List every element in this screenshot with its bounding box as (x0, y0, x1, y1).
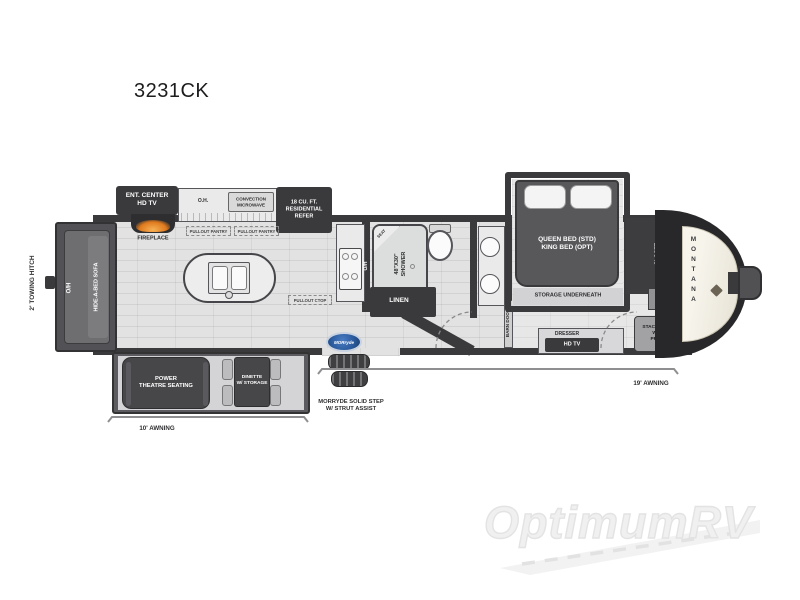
awning-right-label: 19' AWNING (633, 380, 668, 388)
shower-label: 48"X30" SHOWER (394, 252, 408, 277)
barn-door-label: BARN DOOR (505, 309, 511, 337)
entry-step-2 (331, 371, 368, 387)
counter-oh-label: O.H. (198, 198, 208, 204)
fireplace-flame (136, 220, 170, 232)
dresser-tv-label: HD TV (564, 342, 581, 349)
toilet (427, 230, 453, 261)
convection-microwave-label: CONVECTION MICROWAVE (236, 196, 266, 207)
pullout-pantry-2: PULLOUT PANTRY (234, 226, 279, 236)
step-label: MORRYDE SOLID STEP W/ STRUT ASSIST (318, 399, 384, 413)
pullout-pantry-1: PULLOUT PANTRY (186, 226, 231, 236)
theatre-armrest-left (126, 362, 131, 406)
shower-drain (410, 264, 415, 269)
dinette-label: DINETTE W/ STORAGE (237, 375, 268, 387)
entertainment-center-label: ENT. CENTER HD TV (126, 192, 169, 208)
fireplace (131, 214, 175, 233)
theatre-armrest-right (203, 362, 208, 406)
sofa-label: HIDE-A-BED SOFA (94, 263, 101, 312)
sofa-oh-label: O/H (66, 283, 74, 294)
rear-hitch-stub (45, 276, 55, 289)
sink-basin-right (231, 266, 247, 290)
burner (351, 273, 358, 280)
dinette-chair (222, 385, 233, 406)
watermark-text: OptimumRV (484, 497, 753, 549)
vanity-sink-2 (480, 274, 500, 294)
fireplace-label: FIREPLACE (137, 236, 168, 243)
bath-mid-wall (470, 222, 477, 318)
sink-faucet (225, 291, 233, 299)
entry-step-1 (328, 354, 370, 370)
pullout-pantry-2-label: PULLOUT PANTRY (238, 229, 276, 234)
floorplan-page: 3231CK 2' TOWING HITCH O/H HIDE-A-BED SO… (0, 0, 800, 600)
pullout-countertop: PULLOUT CTOP (288, 295, 332, 305)
dinette-chair (270, 359, 281, 380)
awning-line-left (108, 417, 308, 422)
refrigerator-label: 18 CU. FT. RESIDENTIAL REFER (286, 200, 323, 221)
awning-left-label: 10' AWNING (139, 425, 174, 433)
sink-basin-left (212, 266, 228, 290)
page-title: 3231CK (134, 80, 209, 103)
shower-seat (374, 226, 400, 252)
linen-label: LINEN (389, 297, 409, 305)
range-oh-label: O/H (363, 262, 369, 271)
pullout-pantry-1-label: PULLOUT PANTRY (190, 229, 228, 234)
pullout-countertop-label: PULLOUT CTOP (294, 298, 327, 303)
burner (342, 273, 349, 280)
range-cooktop (339, 248, 362, 290)
dinette-chair (222, 359, 233, 380)
brand-label: MONTANA (690, 236, 697, 336)
morryde-logo: MORryde (326, 332, 362, 352)
bed-label: QUEEN BED (STD) KING BED (OPT) (538, 236, 596, 252)
awning-line-right (318, 369, 678, 374)
dinette-chair (270, 385, 281, 406)
vanity-sink-1 (480, 237, 500, 257)
counter-hatch (181, 213, 275, 221)
dresser-label: DRESSER (555, 331, 579, 337)
towing-hitch-label: 2' TOWING HITCH (29, 255, 37, 310)
morryde-logo-text: MORryde (334, 340, 354, 345)
underbed-storage-label: STORAGE UNDERNEATH (535, 293, 602, 300)
pillow-left (524, 185, 566, 209)
burner (342, 253, 349, 260)
hitch-pin-arm (738, 266, 762, 300)
burner (351, 253, 358, 260)
pillow-right (570, 185, 612, 209)
theatre-label: POWER THEATRE SEATING (139, 376, 193, 390)
